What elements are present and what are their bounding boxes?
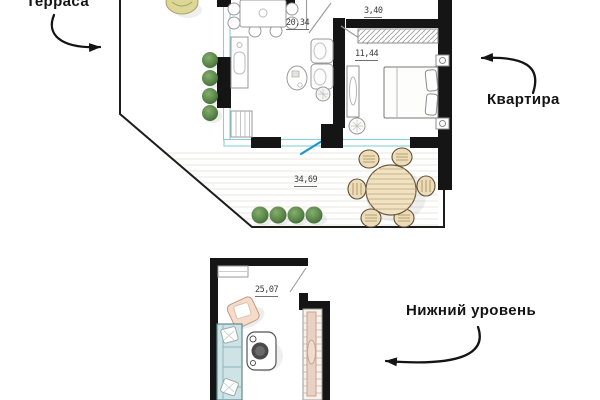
area-label-terrace: 34,69 — [294, 175, 317, 187]
lounge-sofa — [217, 324, 242, 400]
lower-door-swing — [290, 268, 306, 292]
upper-plan — [120, 0, 452, 227]
bedroom-plant-icon — [349, 118, 365, 134]
living-sofa — [311, 39, 333, 89]
potted-plant-icon — [166, 0, 202, 18]
floorplan-graphics — [0, 0, 600, 400]
plant-small-icon — [316, 87, 330, 101]
area-label-living-kitchen: 20,34 — [286, 18, 309, 30]
lounge-coffee-table — [247, 332, 283, 372]
coffee-table-oval — [287, 66, 307, 90]
area-label-hall: 3,40 — [364, 6, 382, 18]
apartment-arrow — [482, 58, 535, 93]
interior-steps — [231, 111, 252, 137]
area-label-lounge: 25,07 — [255, 285, 278, 297]
wardrobe-hatched — [358, 29, 438, 43]
terrace-annotation: Терраса — [26, 0, 89, 10]
lower-level-arrow — [386, 327, 480, 362]
apartment-annotation: Квартира — [487, 91, 560, 108]
area-label-bedroom: 11,44 — [355, 49, 378, 61]
floorplan-image: Терраса Квартира Нижний уровень 20,34 3,… — [0, 0, 600, 400]
lower-level-annotation: Нижний уровень — [406, 302, 536, 319]
lower-wardrobe — [218, 266, 248, 277]
bedroom-dresser — [347, 66, 359, 117]
bed — [384, 67, 438, 118]
terrace-arrow — [52, 15, 100, 47]
kitchen-counter — [231, 37, 248, 88]
lower-plan — [210, 258, 330, 400]
staircase — [303, 309, 322, 400]
